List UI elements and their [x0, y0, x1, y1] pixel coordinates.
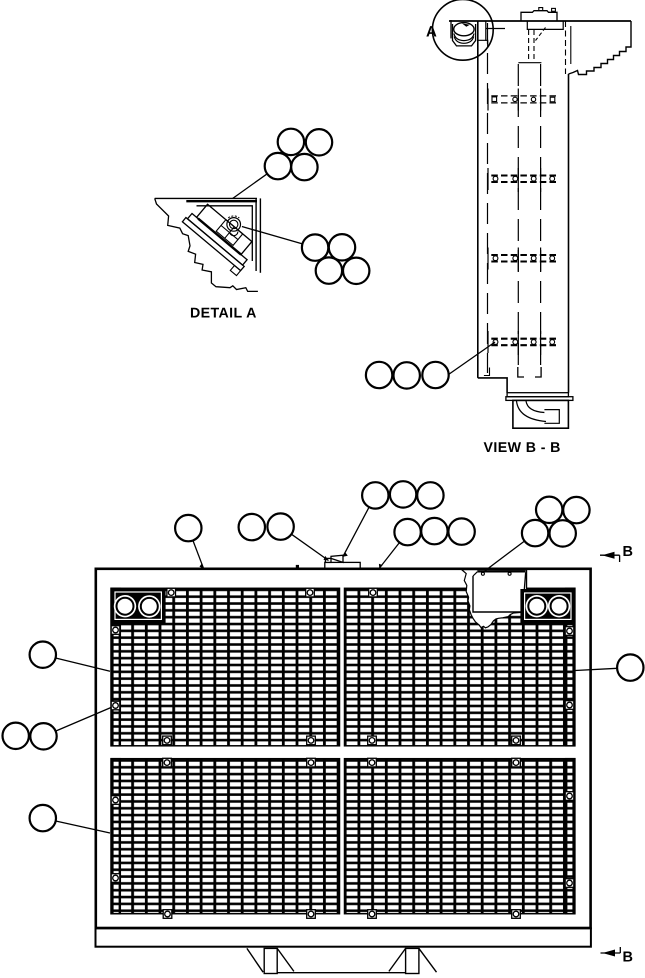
- svg-text:DETAIL A: DETAIL A: [190, 306, 257, 322]
- svg-text:B: B: [623, 544, 633, 560]
- svg-text:VIEW B - B: VIEW B - B: [484, 440, 561, 456]
- svg-text:B: B: [623, 950, 633, 966]
- svg-text:A: A: [426, 24, 437, 41]
